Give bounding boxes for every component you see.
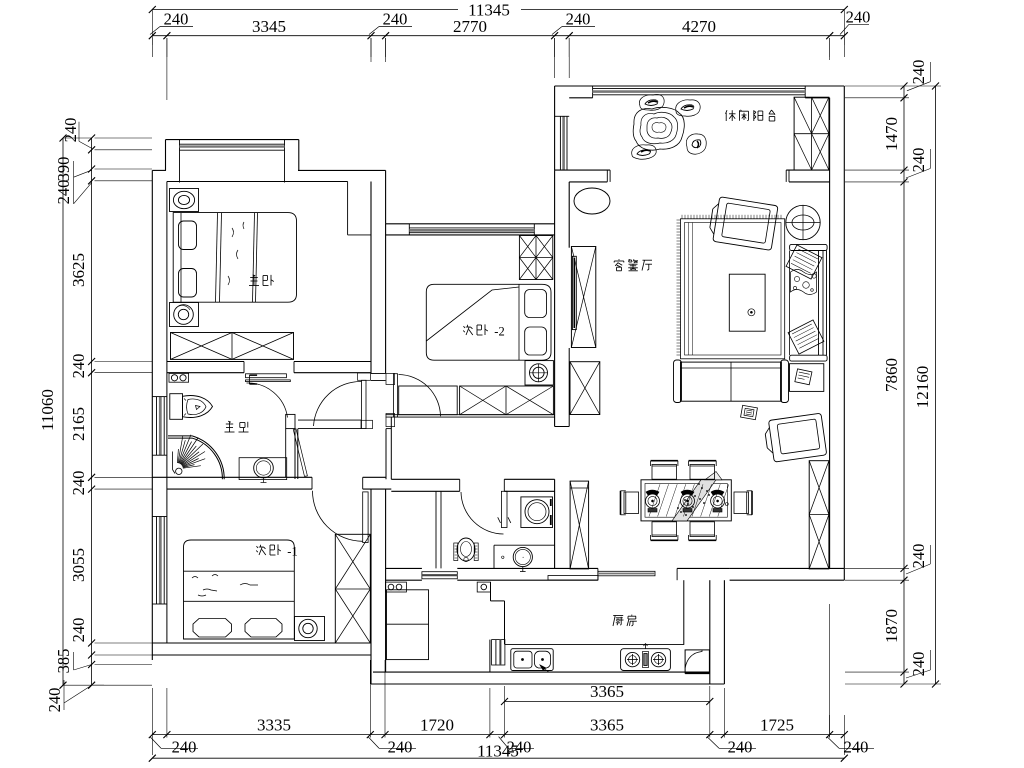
svg-text:240: 240 <box>566 10 591 29</box>
svg-text:7860: 7860 <box>882 358 901 392</box>
svg-text:240: 240 <box>909 148 928 173</box>
svg-text:3365: 3365 <box>590 716 624 735</box>
svg-text:4270: 4270 <box>682 17 716 36</box>
svg-text:240: 240 <box>69 618 88 643</box>
svg-text:1870: 1870 <box>882 609 901 643</box>
svg-text:240: 240 <box>844 738 869 757</box>
svg-text:240: 240 <box>45 688 64 713</box>
svg-text:240: 240 <box>69 354 88 379</box>
svg-text:1720: 1720 <box>420 716 454 735</box>
svg-text:240: 240 <box>846 8 871 27</box>
svg-text:3055: 3055 <box>69 548 88 582</box>
svg-text:390: 390 <box>54 157 73 182</box>
svg-text:240: 240 <box>909 544 928 569</box>
svg-text:12160: 12160 <box>913 366 932 409</box>
svg-text:2770: 2770 <box>453 17 487 36</box>
svg-text:11345: 11345 <box>477 742 519 761</box>
svg-text:240: 240 <box>909 60 928 85</box>
svg-text:3625: 3625 <box>69 253 88 287</box>
svg-text:3335: 3335 <box>257 716 291 735</box>
svg-text:240: 240 <box>164 10 189 29</box>
svg-text:3365: 3365 <box>590 682 624 701</box>
svg-text:385: 385 <box>54 649 73 674</box>
svg-text:240: 240 <box>54 180 73 205</box>
svg-text:11060: 11060 <box>38 389 57 431</box>
svg-text:-2: -2 <box>494 325 504 339</box>
svg-text:2165: 2165 <box>69 407 88 441</box>
svg-text:240: 240 <box>388 738 413 757</box>
svg-text:3345: 3345 <box>252 17 286 36</box>
svg-text:240: 240 <box>69 471 88 496</box>
svg-text:1725: 1725 <box>760 716 794 735</box>
svg-text:240: 240 <box>909 652 928 677</box>
svg-text:1470: 1470 <box>882 117 901 151</box>
svg-text:240: 240 <box>172 738 197 757</box>
svg-text:-1: -1 <box>287 545 297 559</box>
svg-text:240: 240 <box>61 118 80 143</box>
svg-text:240: 240 <box>383 10 408 29</box>
svg-text:240: 240 <box>728 738 753 757</box>
